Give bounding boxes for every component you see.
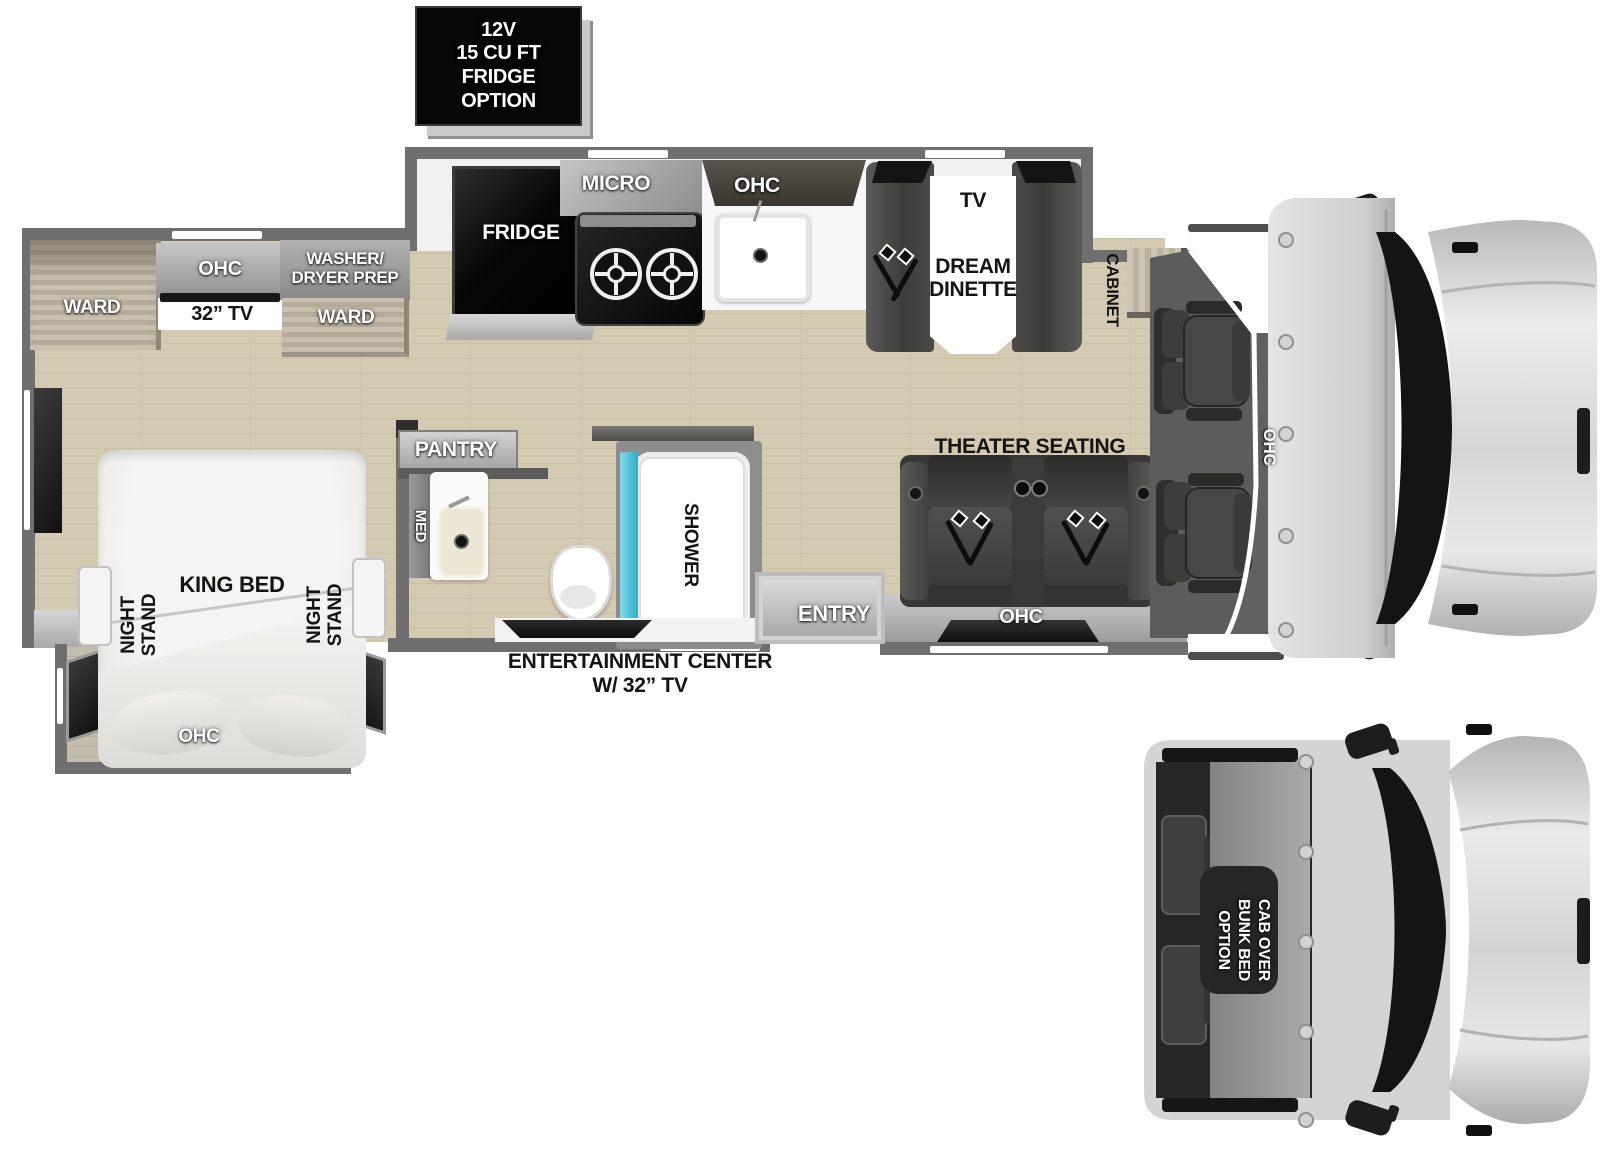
nightstand-left	[78, 566, 112, 646]
stove-burner-right	[646, 248, 698, 300]
theater-backrest-left	[928, 455, 1012, 509]
entry-steps	[755, 572, 885, 644]
entertainment-label: ENTERTAINMENT CENTER W/ 32” TV	[485, 648, 795, 700]
theater-arm-cup-left	[908, 486, 923, 501]
truck-front	[1140, 140, 1600, 700]
toilet-bowl	[550, 545, 612, 621]
micro-hood	[560, 160, 706, 216]
theater-seat-right	[1044, 507, 1128, 585]
theater-console	[1012, 458, 1044, 560]
bath-sink-drain	[454, 534, 469, 549]
dinette-bench-right	[1012, 162, 1082, 352]
wall-slide-right	[1081, 147, 1093, 263]
theater-seat-left	[928, 507, 1012, 585]
shower-pan	[634, 452, 750, 638]
passenger-seat	[1154, 301, 1250, 421]
toilet-seat	[560, 585, 596, 609]
floorplan-canvas: WARD OHC 32” TV WASHER/ DRYER PREP WARD …	[0, 0, 1600, 1170]
fridge-option-label: 12V 15 CU FT FRIDGE OPTION	[456, 19, 540, 113]
shower-top-shelf	[592, 426, 754, 441]
sofa-wall-window	[930, 620, 1106, 642]
stove-vent	[580, 215, 696, 227]
wall-slide-left	[405, 147, 417, 251]
shower-glass	[620, 452, 638, 641]
dinette-table	[930, 176, 1016, 354]
theater-foot-right	[1044, 585, 1128, 605]
kitchen-ohc-cabinet	[702, 160, 866, 206]
bedroom-ohc-cabinet	[156, 243, 284, 300]
washer-dryer-prep-cabinet	[280, 240, 410, 300]
truck-bunk-view	[1100, 690, 1600, 1170]
window-slot-living-bottom	[930, 646, 1108, 653]
dinette-window-right	[1016, 161, 1076, 183]
med-cabinet	[409, 474, 431, 578]
theater-cupholder-a	[1014, 480, 1031, 497]
driver-seat	[1156, 473, 1252, 593]
window-slot-kitchen	[588, 150, 668, 158]
theater-foot-left	[928, 585, 1012, 605]
bedroom-tv-niche	[158, 298, 284, 330]
fridge-option-box: 12V 15 CU FT FRIDGE OPTION	[415, 6, 582, 126]
theater-arm-left	[900, 462, 930, 600]
bed-slide-window-sliver	[57, 668, 63, 724]
rear-window	[34, 388, 62, 533]
dinette-window-left	[872, 161, 932, 183]
window-slot-dinette	[925, 150, 1005, 158]
window-slot-rear	[24, 390, 30, 530]
kitchen-sink-drain	[753, 248, 768, 263]
theater-cupholder-b	[1031, 480, 1048, 497]
fridge-base	[446, 314, 596, 340]
nightstand-right	[352, 558, 386, 638]
bedroom-tv	[160, 293, 280, 302]
entertainment-tv	[502, 620, 652, 638]
stove-burner-left	[590, 248, 642, 300]
theater-backrest-right	[1044, 455, 1128, 509]
wardrobe-right	[282, 298, 409, 357]
wardrobe-left	[30, 240, 161, 350]
window-slot-bedroom-top	[172, 231, 262, 239]
